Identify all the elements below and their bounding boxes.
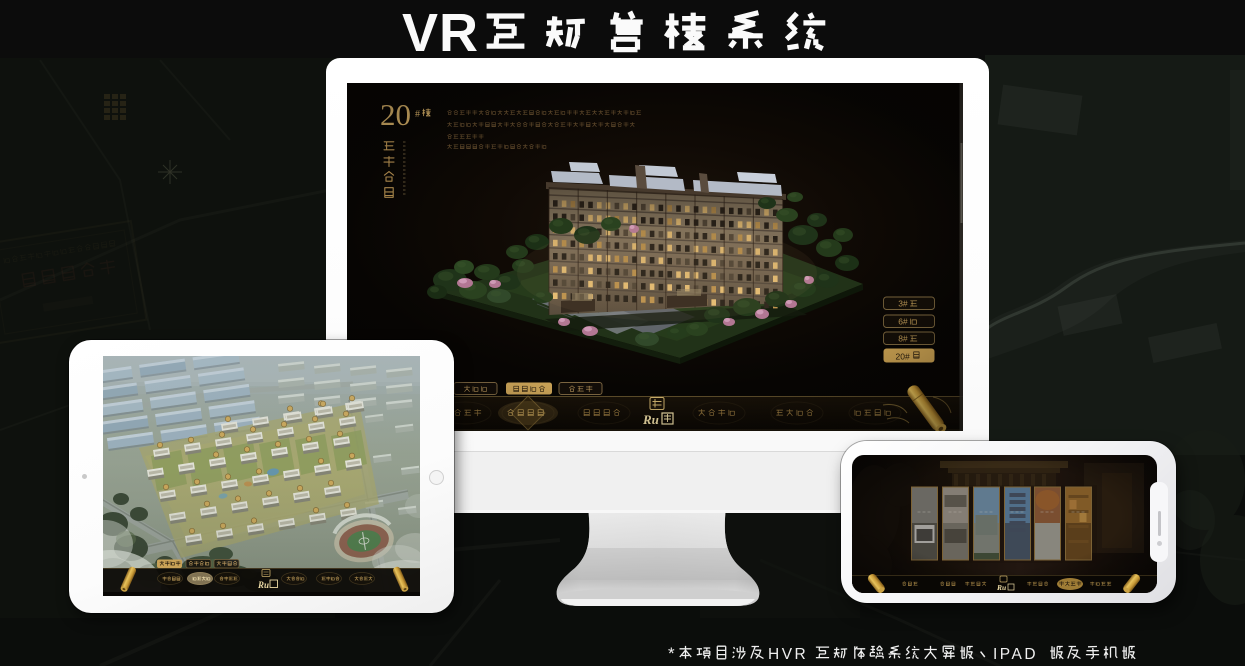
svg-text:*: * bbox=[668, 644, 675, 663]
svg-text:HVR: HVR bbox=[768, 646, 808, 663]
svg-text:Ru: Ru bbox=[996, 583, 1006, 592]
svg-text:IPAD: IPAD bbox=[993, 646, 1038, 663]
svg-text:Ru: Ru bbox=[257, 580, 269, 590]
svg-text:VR: VR bbox=[402, 4, 479, 60]
